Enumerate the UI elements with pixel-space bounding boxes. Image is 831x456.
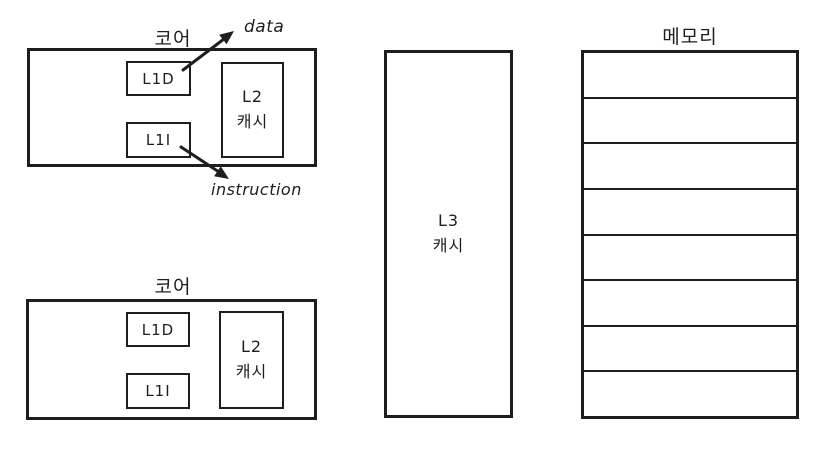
memory-row	[584, 53, 796, 97]
memory-row	[584, 234, 796, 280]
l3-label-line2: 캐시	[433, 234, 464, 259]
memory-row	[584, 279, 796, 325]
core0-l2-label-line2: 캐시	[237, 110, 268, 135]
memory-row	[584, 97, 796, 143]
core1-l2-label-line1: L2	[241, 335, 262, 360]
memory-title: 메모리	[645, 22, 735, 49]
memory-box	[581, 50, 799, 419]
memory-row	[584, 188, 796, 234]
cache-hierarchy-diagram: 코어 L1D L1I L2 캐시 코어 L1D L1I L2 캐시 L3 캐시 …	[0, 0, 831, 456]
core0-l1i-cache: L1I	[126, 122, 191, 158]
core1-title: 코어	[128, 272, 218, 299]
core1-l1d-cache: L1D	[126, 312, 190, 347]
core1-l1i-cache: L1I	[126, 373, 190, 409]
core0-l2-label-line1: L2	[242, 85, 263, 110]
data-annotation: data	[244, 17, 284, 37]
core0-title: 코어	[128, 24, 218, 51]
memory-row	[584, 142, 796, 188]
core0-l2-cache: L2 캐시	[221, 62, 284, 158]
instruction-annotation: instruction	[211, 180, 302, 199]
memory-row	[584, 325, 796, 371]
memory-row	[584, 370, 796, 416]
core1-l2-label-line2: 캐시	[236, 360, 267, 385]
core0-l1d-cache: L1D	[126, 61, 191, 96]
l3-label-line1: L3	[438, 209, 459, 234]
core1-l2-cache: L2 캐시	[219, 311, 284, 409]
l3-cache: L3 캐시	[384, 50, 513, 418]
